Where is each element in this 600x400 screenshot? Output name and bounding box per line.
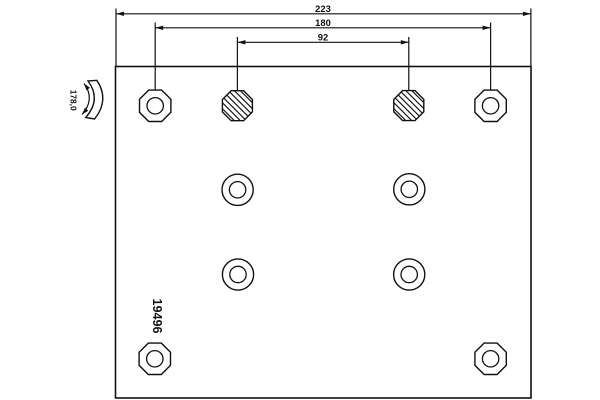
svg-text:223: 223 xyxy=(315,3,331,14)
svg-text:180: 180 xyxy=(315,17,331,28)
svg-text:178,0: 178,0 xyxy=(68,90,78,111)
svg-text:19496: 19496 xyxy=(150,298,164,333)
svg-text:92: 92 xyxy=(318,32,328,43)
